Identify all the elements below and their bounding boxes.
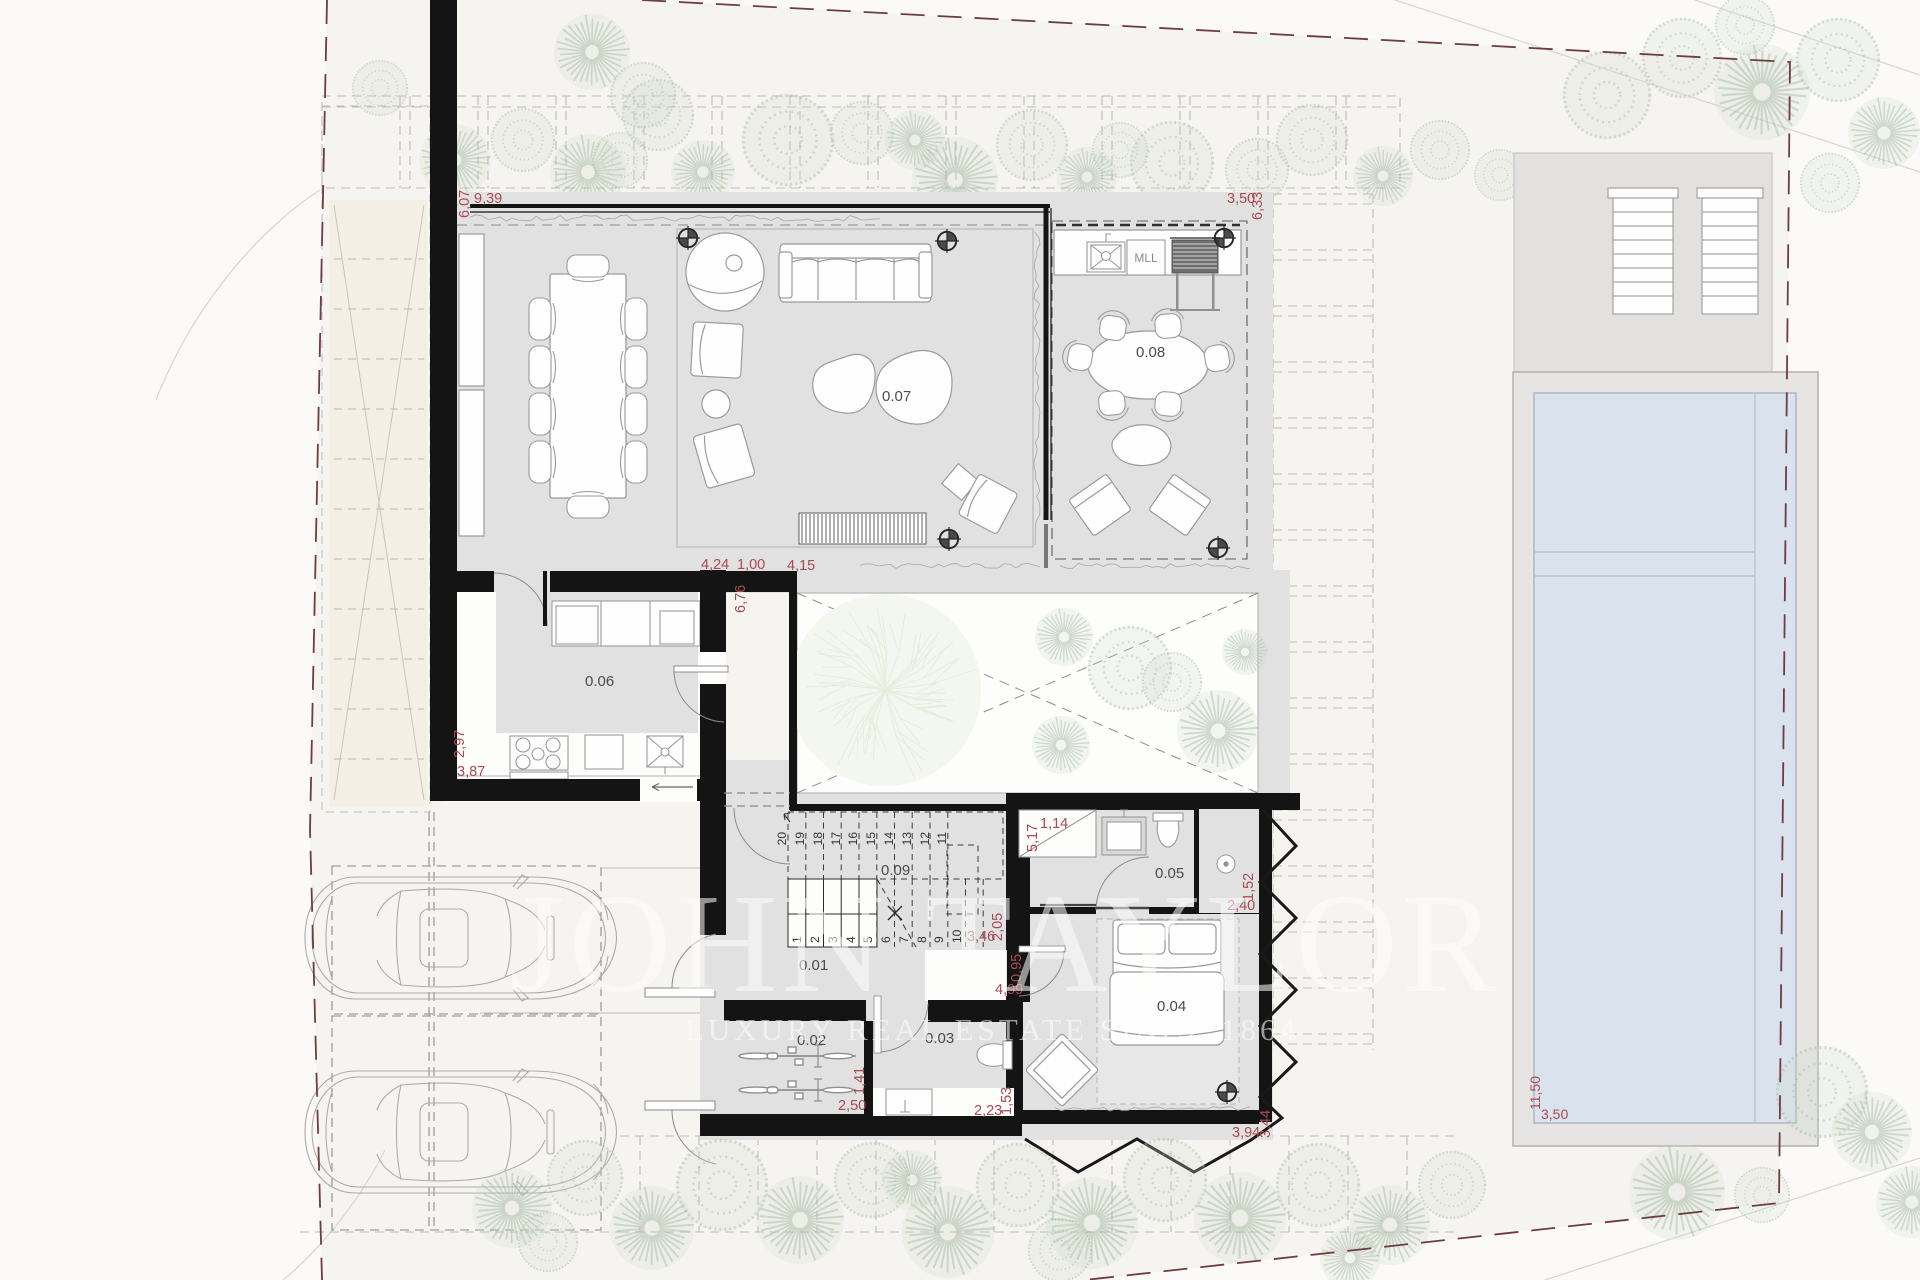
svg-text:6,33: 6,33 <box>1250 192 1266 220</box>
svg-text:1,00: 1,00 <box>737 557 765 573</box>
svg-text:16: 16 <box>846 832 860 846</box>
svg-text:6,76: 6,76 <box>733 585 749 613</box>
svg-text:0.06: 0.06 <box>585 673 614 690</box>
svg-text:LUXURY REAL ESTATE SINCE 1864: LUXURY REAL ESTATE SINCE 1864 <box>685 1012 1299 1047</box>
svg-text:2,97: 2,97 <box>452 730 468 758</box>
svg-text:2,50: 2,50 <box>838 1098 866 1114</box>
svg-text:18: 18 <box>811 832 825 846</box>
svg-text:17: 17 <box>829 832 843 846</box>
svg-text:0.07: 0.07 <box>882 388 911 405</box>
svg-text:12: 12 <box>918 832 932 846</box>
svg-text:0.08: 0.08 <box>1136 344 1165 361</box>
svg-text:19: 19 <box>793 832 807 846</box>
svg-text:5,17: 5,17 <box>1025 824 1041 852</box>
svg-text:11: 11 <box>935 832 949 845</box>
svg-text:3,50: 3,50 <box>1541 1106 1568 1122</box>
svg-text:4,24: 4,24 <box>701 557 729 573</box>
svg-text:MLL: MLL <box>1134 251 1158 265</box>
svg-text:15: 15 <box>864 832 878 846</box>
svg-text:9,39: 9,39 <box>474 191 502 207</box>
svg-text:1,41: 1,41 <box>852 1067 868 1095</box>
svg-text:2,23: 2,23 <box>974 1103 1002 1119</box>
svg-text:20: 20 <box>775 832 789 846</box>
svg-text:3,44: 3,44 <box>1258 1110 1274 1138</box>
svg-text:6,07: 6,07 <box>457 190 473 218</box>
svg-text:4,15: 4,15 <box>787 558 815 574</box>
svg-text:1,14: 1,14 <box>1040 816 1068 832</box>
svg-text:JOHN TAYLOR: JOHN TAYLOR <box>509 864 1500 1022</box>
svg-text:3,94: 3,94 <box>1232 1125 1260 1141</box>
svg-text:11,50: 11,50 <box>1527 1076 1543 1110</box>
svg-text:1,53: 1,53 <box>999 1087 1015 1115</box>
svg-text:13: 13 <box>900 832 914 846</box>
svg-text:14: 14 <box>882 832 896 846</box>
svg-text:3,87: 3,87 <box>457 764 485 780</box>
